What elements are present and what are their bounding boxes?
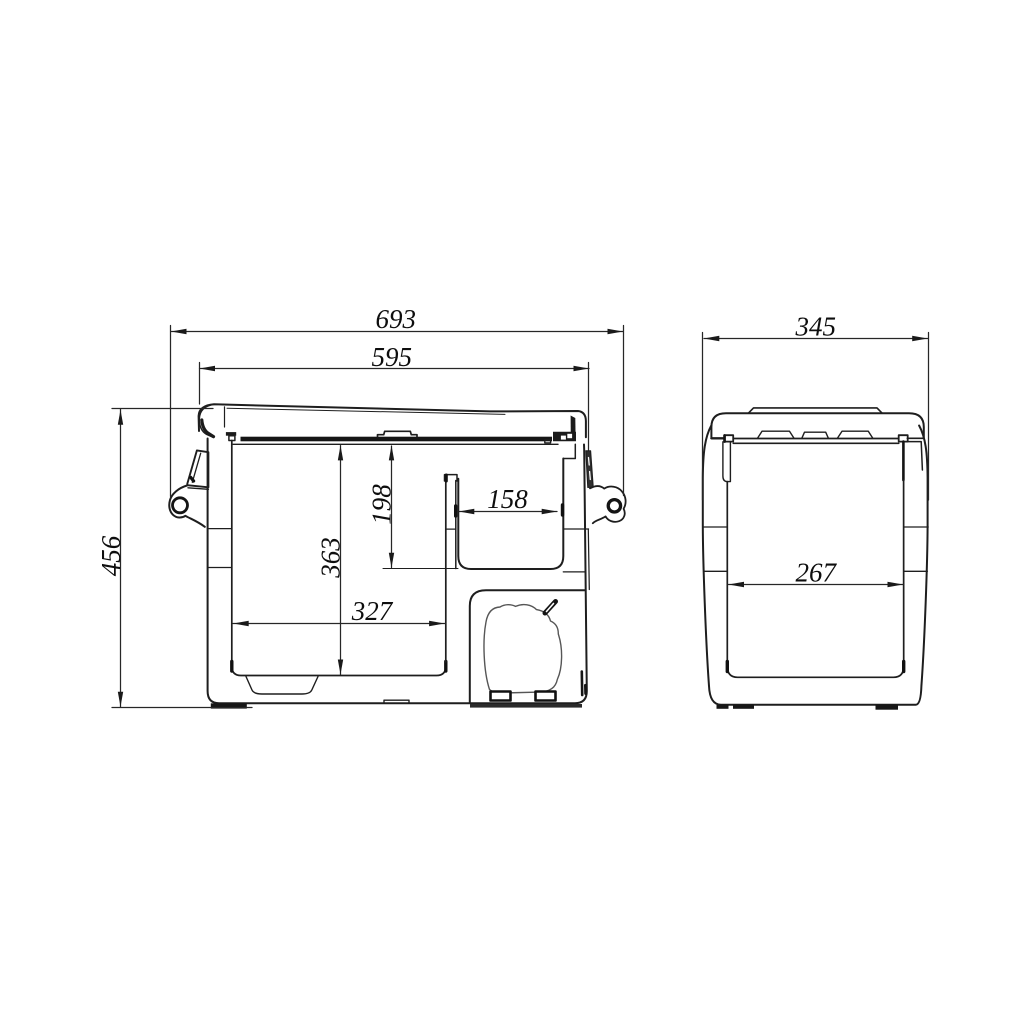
svg-text:595: 595: [371, 342, 412, 372]
svg-text:267: 267: [795, 557, 837, 587]
svg-text:198: 198: [367, 484, 397, 525]
svg-text:327: 327: [351, 596, 394, 626]
svg-text:693: 693: [375, 304, 416, 334]
svg-text:363: 363: [316, 537, 346, 579]
svg-text:345: 345: [794, 312, 836, 342]
svg-text:456: 456: [96, 535, 126, 576]
svg-text:158: 158: [487, 484, 528, 514]
